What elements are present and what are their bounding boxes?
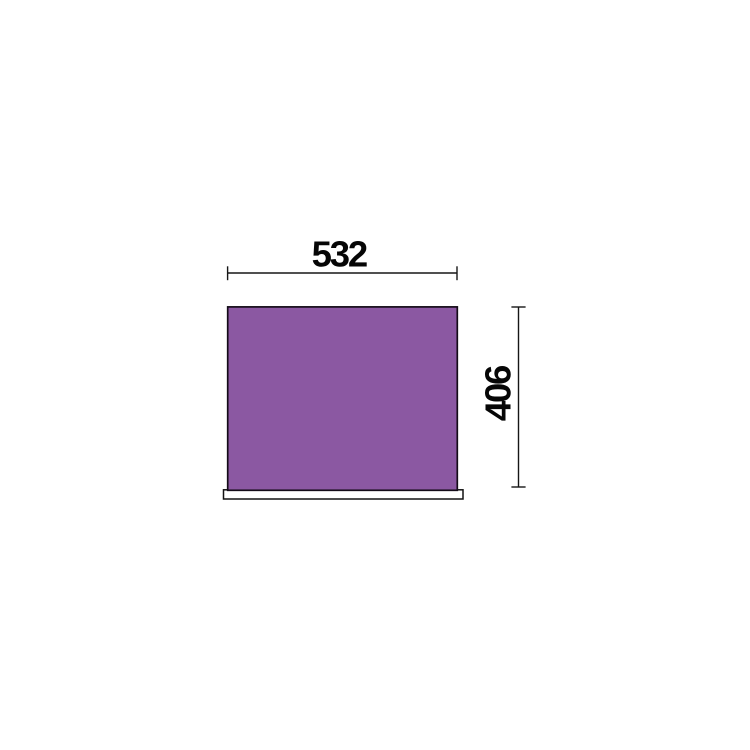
svg-text:406: 406 bbox=[478, 366, 519, 421]
svg-text:532: 532 bbox=[312, 234, 367, 275]
